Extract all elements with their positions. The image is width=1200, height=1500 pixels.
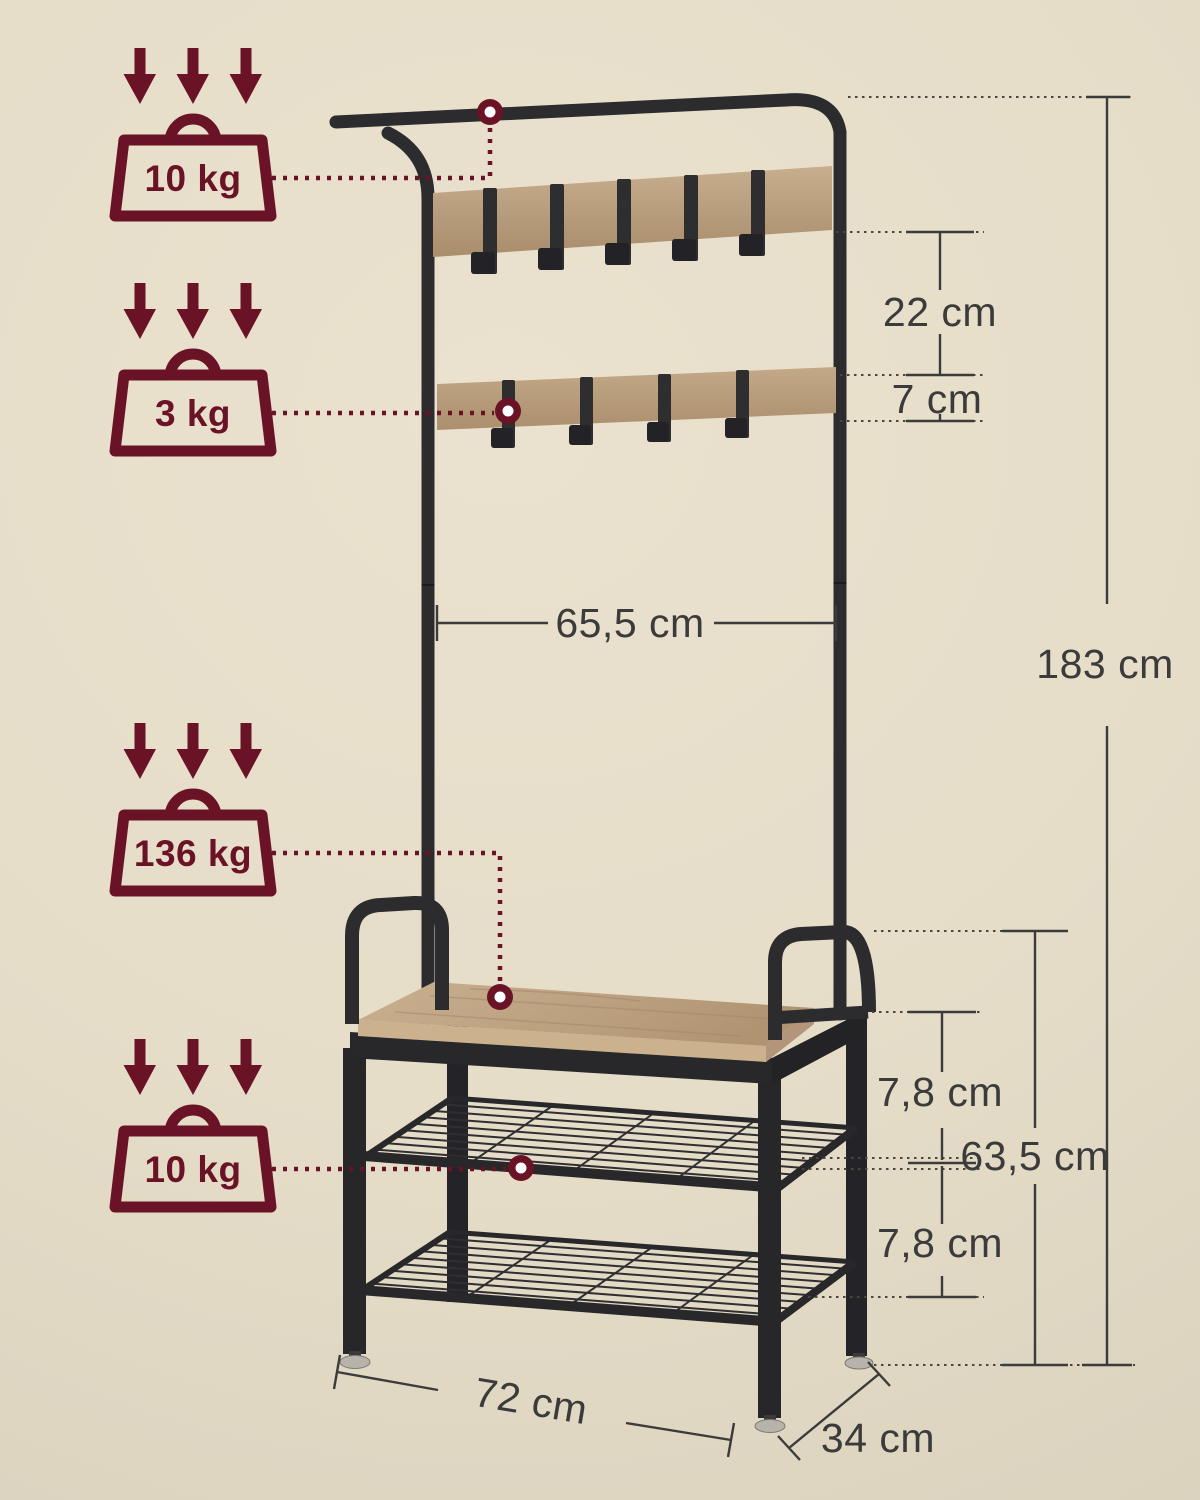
storage-bench [340, 903, 873, 1433]
dimension-label-board-height: 7 cm [892, 376, 983, 422]
weight-badge-rail: 10 kg [115, 48, 271, 216]
dimension-label-inner-width: 65,5 cm [555, 600, 704, 646]
dimension-board-gap: 22 cm 7 cm [883, 232, 997, 422]
dimension-label-seat-to-shelf: 7,8 cm [877, 1069, 1003, 1115]
dimension-bench-width: 72 cm [334, 1355, 734, 1457]
point-marker [487, 984, 513, 1010]
diagram-illustration: 22 cm 7 cm 65,5 cm 183 cm 63,5 cm [0, 0, 1200, 1500]
leg-front-left [343, 1048, 366, 1354]
hook-board-top [433, 166, 832, 274]
dimension-label-shelf-gap: 7,8 cm [877, 1220, 1003, 1266]
armrest-crossbar [772, 1012, 868, 1018]
dimension-label-bench-width: 72 cm [471, 1369, 591, 1433]
weight-badge-label: 136 kg [134, 833, 252, 874]
weight-badge-label: 10 kg [144, 158, 241, 199]
point-marker [477, 99, 503, 125]
left-pole [388, 133, 428, 1018]
product-dimension-diagram: 22 cm 7 cm 65,5 cm 183 cm 63,5 cm [0, 0, 1200, 1500]
mesh-shelf-1 [364, 1098, 856, 1188]
leg-front-right [758, 1072, 781, 1418]
weight-badge-label: 3 kg [155, 393, 231, 434]
dimension-bench-height: 63,5 cm [960, 931, 1109, 1365]
point-marker [495, 398, 521, 424]
adjustable-foot [340, 1356, 370, 1369]
adjustable-foot [755, 1420, 785, 1433]
dimension-shelf-gap: 7,8 cm [877, 1166, 1003, 1297]
dimension-label-board-gap: 22 cm [883, 289, 997, 335]
dimension-label-total-height: 183 cm [1036, 641, 1173, 687]
leg-rear-right [846, 1014, 867, 1356]
weight-badge-label: 10 kg [144, 1149, 241, 1190]
weight-badge-hook-board: 3 kg [115, 283, 271, 451]
weight-badge-shelf: 10 kg [115, 1039, 271, 1207]
weight-badge-bench: 136 kg [115, 723, 271, 891]
point-marker [508, 1155, 534, 1181]
dimension-label-bench-depth: 34 cm [821, 1415, 935, 1461]
dimension-inner-width: 65,5 cm [437, 600, 836, 646]
dimension-bench-depth: 34 cm [778, 1362, 935, 1461]
dimension-label-bench-height: 63,5 cm [960, 1133, 1109, 1179]
hook-board-bottom-panel [437, 367, 836, 430]
